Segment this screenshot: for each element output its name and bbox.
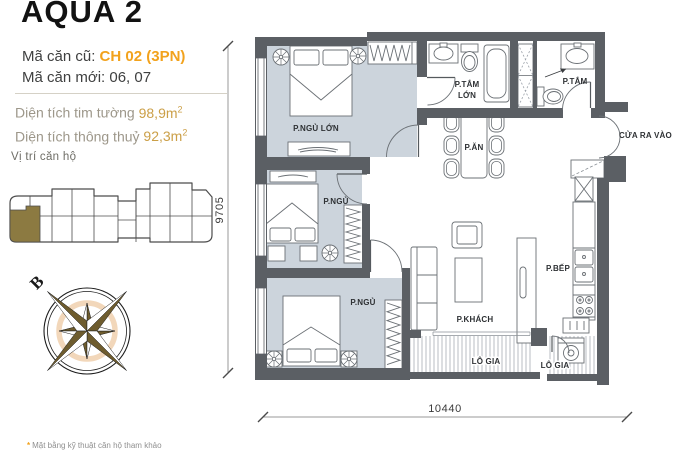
master-dresser [288, 142, 350, 156]
label-bathroom-large-1: P.TẮM [455, 80, 480, 89]
footnote-bullet: * [27, 441, 30, 450]
gross-area-label: Diện tích tim tường [15, 105, 135, 121]
living-room-furniture [411, 222, 536, 343]
floor-plan-page: B [0, 0, 675, 450]
label-master-bedroom: P.NGỦ LỚN [293, 124, 339, 133]
compass-north-label: B [26, 272, 47, 293]
footnote: *Mặt bằng kỹ thuật căn hộ tham khảo [27, 441, 162, 450]
label-bathroom: P.TẮM [563, 77, 588, 86]
page-title: AQUA 2 [21, 0, 143, 30]
building-location-diagram [10, 183, 212, 242]
loggia-2-furniture [558, 338, 584, 363]
old-code-line: Mã căn cũ: CH 02 (3PN) [22, 46, 185, 67]
bedroom-3-wardrobe [385, 300, 402, 369]
washing-machine [558, 338, 584, 363]
label-bedroom-3: P.NGỦ [350, 298, 375, 307]
label-entrance: CỬA RA VÀO [619, 131, 672, 140]
entrance-door-arc [599, 116, 620, 158]
gross-area-value: 98,9m2 [139, 105, 183, 121]
label-kitchen: P.BẾP [546, 263, 570, 273]
tv [520, 267, 526, 298]
windows [256, 58, 266, 354]
label-dining: P.ĂN [465, 143, 484, 152]
new-code-label: Mã căn mới: [22, 69, 105, 86]
highlighted-unit [10, 206, 40, 242]
divider [15, 93, 227, 94]
label-bathroom-large-2: LỚN [458, 91, 476, 100]
new-code-value: 06, 07 [109, 69, 151, 86]
label-bedroom-2: P.NGỦ [323, 197, 348, 206]
net-area-line: Diện tích thông thuỷ 92,3m2 [15, 123, 187, 147]
loggia-1-deck [409, 336, 531, 373]
dimension-width-label: 10440 [428, 403, 462, 415]
floor-plan: 9705 10440 P.NGỦ LỚN P.TẮM LỚN P.TẮM P.Ă… [214, 32, 672, 422]
new-code-line: Mã căn mới: 06, 07 [22, 67, 185, 88]
label-loggia-2: LÔ GIA [541, 361, 570, 370]
footnote-text: Mặt bằng kỹ thuật căn hộ tham khảo [32, 441, 161, 450]
label-living: P.KHÁCH [457, 315, 494, 324]
sofa [411, 247, 437, 330]
old-code-label: Mã căn cũ: [22, 48, 95, 65]
dimension-width: 10440 [258, 403, 632, 422]
net-area-value: 92,3m2 [143, 128, 187, 144]
dimension-height-label: 9705 [214, 197, 226, 224]
old-code-value: CH 02 (3PN) [100, 48, 186, 65]
compass-rose: B [26, 272, 130, 374]
dimension-height: 9705 [214, 41, 233, 378]
unit-areas: Diện tích tim tường 98,9m2 Diện tích thô… [15, 99, 187, 146]
loggia-rail [433, 332, 530, 336]
unit-codes: Mã căn cũ: CH 02 (3PN) Mã căn mới: 06, 0… [22, 46, 185, 88]
label-loggia-1: LÔ GIA [472, 357, 501, 366]
location-label: Vị trí căn hộ [11, 151, 76, 163]
shaft [518, 44, 533, 107]
coffee-table [455, 258, 482, 302]
net-area-label: Diện tích thông thuỷ [15, 128, 140, 144]
gross-area-line: Diện tích tim tường 98,9m2 [15, 99, 187, 123]
